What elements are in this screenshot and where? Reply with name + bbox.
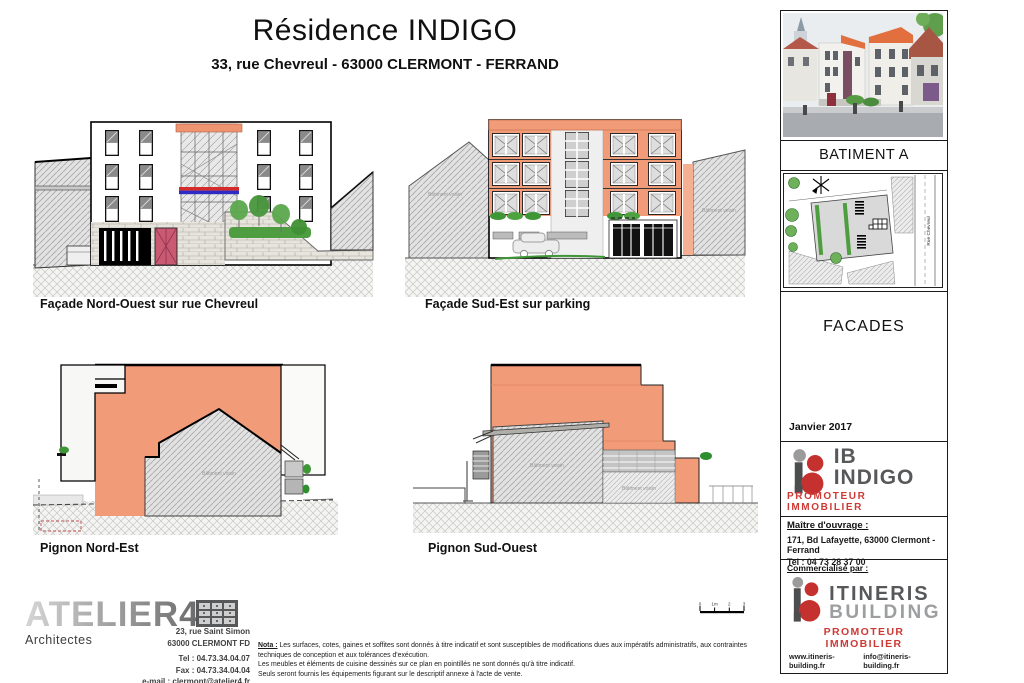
render-photo-section [781,11,947,140]
elevation-facade-sud-est: Bâtiment voisin [405,100,750,300]
architect-fax: Fax : 04.73.34.04.04 [110,665,250,677]
elevation-facade-nord-ouest [33,100,378,300]
garage-door [644,224,673,256]
white-column-right [281,365,325,475]
garage-door [613,224,640,256]
railing [603,450,675,472]
marketer-section: Commercialisé par : ITINERIS BUILDING PR… [781,559,947,673]
marketer-name-top: ITINERIS [829,585,941,603]
owner-section: IB INDIGO PROMOTEUR IMMOBILIER Maître d'… [781,441,947,559]
nota-label: Nota : [258,642,278,649]
sheet-title-section: FACADES Janvier 2017 [781,291,947,441]
bush [700,452,712,460]
caption-pignon-nord-est: Pignon Nord-Est [40,541,139,555]
ground-hatch [405,255,745,297]
caption-facade-nord-ouest: Façade Nord-Ouest sur rue Chevreul [40,297,258,311]
caption-facade-sud-est: Façade Sud-Est sur parking [425,297,590,311]
caption-pignon-sud-ouest: Pignon Sud-Ouest [428,541,537,555]
page-subtitle: 33, rue Chevreul - 63000 CLERMONT - FERR… [0,56,770,73]
siteplan-drawing: Rue Chevreul [783,173,943,288]
architect-tel: Tel : 04.73.34.04.07 [110,653,250,665]
scale-tick-label: 1m [711,602,718,607]
drawing-sheet: Résidence INDIGO 33, rue Chevreul - 6300… [0,0,1024,683]
nota-line-3: Seuls seront fournis les équipements fig… [258,670,758,680]
owner-company-tagline: PROMOTEUR IMMOBILIER [787,491,941,513]
neighbor-label: Bâtiment voisin [622,486,656,492]
ground-hatch [413,503,758,533]
marketer-label: Commercialisé par : [787,563,941,573]
vent-grill [473,451,489,479]
marketer-email: info@itineris-building.fr [863,652,939,670]
scale-tick-label: 2 [728,602,731,607]
scale-bar: 0 1m 2 3 [697,601,749,619]
siteplan-section: Rue Chevreul [781,170,947,291]
shaft-red-band [179,187,239,191]
sheet-title: FACADES [781,318,947,336]
architect-subtitle: Architectes [25,633,92,647]
title-block-panel: BATIMENT A [780,10,948,674]
nota-line-1: Les surfaces, cotes, gaines et soffites … [258,642,747,659]
shaft-orange-band [176,124,242,132]
neighbor-label: Bâtiment voisin [702,208,736,214]
marketer-tagline: PROMOTEUR IMMOBILIER [787,626,941,650]
owner-label: Maître d'ouvrage : [787,520,941,531]
street-name-label: Rue Chevreul [926,216,932,245]
annex-box [67,246,91,265]
scale-tick-label: 3 [743,602,746,607]
neighbor-label: Bâtiment voisin [530,463,564,469]
architect-logo-dots [196,600,238,627]
itineris-logo-icon [787,575,826,625]
neighbor-gable-left [409,142,489,258]
salmon-return [683,164,693,255]
marketer-name-bottom: BUILDING [829,603,941,622]
sheet-date: Janvier 2017 [789,421,852,433]
architect-address-block: 23, rue Saint Simon 63000 CLERMONT FD Te… [110,626,250,683]
page-title: Résidence INDIGO [0,14,770,48]
neighbor-label: Bâtiment voisin [202,471,236,477]
scale-tick-label: 0 [699,602,702,607]
marketer-website: www.itineris-building.fr [789,652,863,670]
architect-email: e-mail : clermont@atelier4.fr [110,676,250,683]
architect-address-1: 23, rue Saint Simon [110,626,250,638]
owner-company-name: IB INDIGO [834,446,941,488]
building-render-image [783,13,943,137]
neighbor-label: Bâtiment voisin [428,192,462,198]
divider [781,516,947,517]
elevation-pignon-nord-est: Bâtiment voisin [33,353,338,538]
elevation-pignon-sud-ouest: Bâtiment voisin Bâtiment voisin [413,355,758,535]
cornice [489,120,681,130]
neighbor-slope-right [331,172,373,250]
shaft-blue-band [179,191,239,195]
nota-line-2: Les meubles et éléments de cuisine dessi… [258,660,758,670]
batiment-label-section: BATIMENT A [781,140,947,170]
architect-address-2: 63000 CLERMONT FD [110,638,250,650]
owner-address: 171, Bd Lafayette, 63000 Clermont - Ferr… [787,535,941,555]
batiment-label: BATIMENT A [819,147,909,163]
neighbor-wall-right [693,150,745,255]
garage-opening [99,228,151,265]
nota-block: Nota : Les surfaces, cotes, gaines et so… [258,641,758,680]
